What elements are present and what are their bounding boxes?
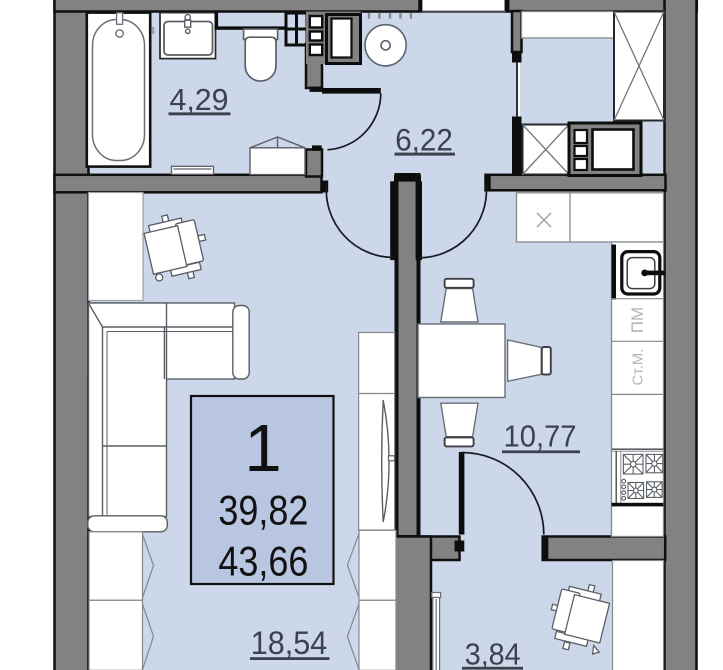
- svg-text:43,66: 43,66: [218, 538, 308, 585]
- svg-text:ПМ: ПМ: [628, 307, 647, 333]
- svg-text:18,54: 18,54: [251, 625, 328, 661]
- svg-text:Ст.М.: Ст.М.: [630, 349, 647, 386]
- svg-text:39,82: 39,82: [218, 487, 308, 534]
- svg-text:4,29: 4,29: [170, 82, 229, 117]
- svg-text:1: 1: [244, 411, 281, 486]
- svg-text:6,22: 6,22: [395, 122, 453, 158]
- svg-text:3,84: 3,84: [465, 637, 521, 670]
- svg-text:10,77: 10,77: [504, 419, 577, 454]
